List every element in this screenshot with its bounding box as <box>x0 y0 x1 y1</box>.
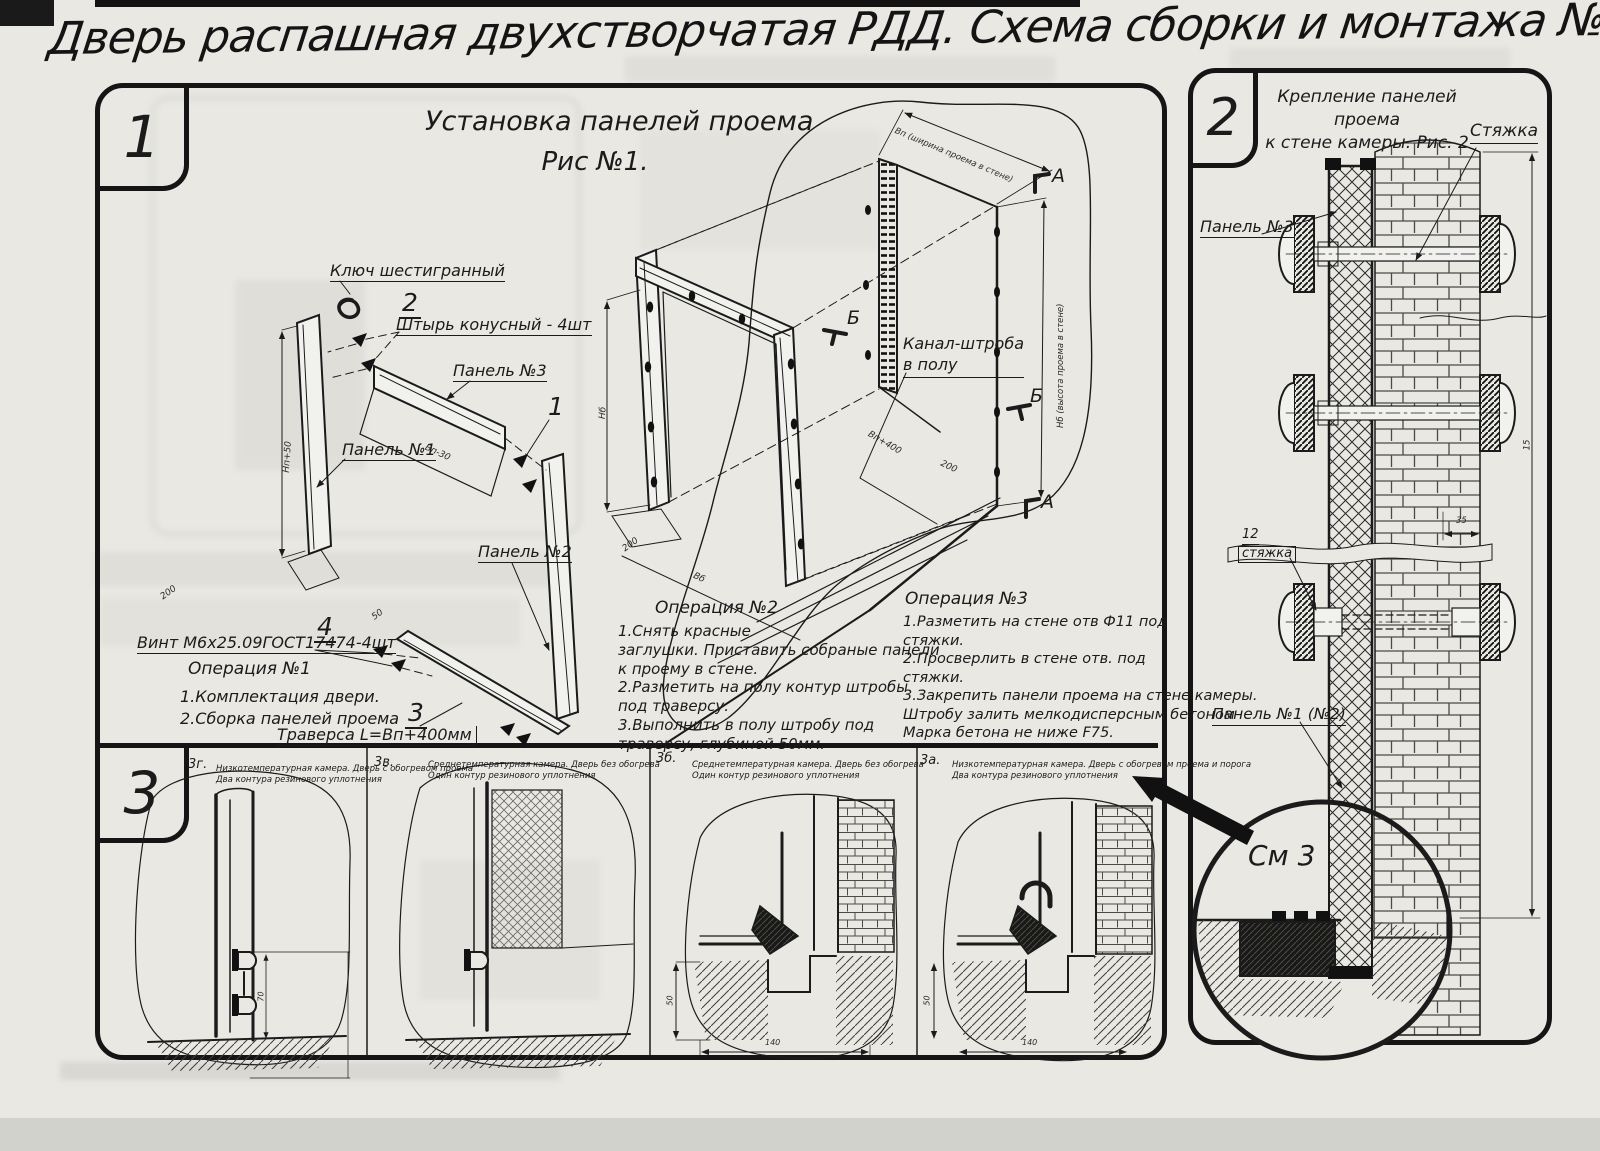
label-tie: Стяжка <box>1470 122 1538 144</box>
label-see-detail: См 3 <box>1248 840 1315 872</box>
sub-3b-desc: Среднетемпературная камера. Дверь без об… <box>692 760 924 782</box>
sub-3g-code: 3г. <box>188 758 207 773</box>
marker-b-left: Б <box>847 308 860 330</box>
label-screw: Винт М6х25.09ГОСТ17474-4шт <box>137 634 396 654</box>
fig1-subtitle: Рис №1. <box>425 148 765 178</box>
section-2-number: 2 <box>1206 88 1239 148</box>
op2-text: 1.Снять красные заглушки. Приставить соб… <box>618 622 940 753</box>
callout-1: 1 <box>545 392 567 421</box>
dim-3a-h: 140 <box>1022 1038 1037 1047</box>
op3-text: 1.Разметить на стене отв Ф11 под стяжки.… <box>903 613 1257 743</box>
ghost-artifact <box>60 1062 560 1080</box>
dim-15: 15 <box>1522 440 1532 451</box>
label-panel2: Панель №2 <box>478 543 572 563</box>
marker-a-top: А <box>1052 166 1065 188</box>
label-hex-key: Ключ шестигранный <box>330 262 505 282</box>
drawing-sheet: Дверь распашная двухстворчатая РДД. Схем… <box>0 0 1600 1151</box>
label-pos12-name: стяжка <box>1238 546 1296 563</box>
dim: Нб <box>598 407 609 420</box>
fig2-title: Крепление панелей проема к стене камеры.… <box>1262 86 1472 155</box>
label-traverse: Траверса L=Вп+400мм <box>277 726 477 746</box>
label-pos12: 12 <box>1242 528 1259 545</box>
op1-title: Операция №1 <box>188 660 311 680</box>
scan-edge-bottom <box>0 1118 1600 1151</box>
sub-3v-desc: Среднетемпературная камера. Дверь без об… <box>428 760 660 782</box>
sub-3v-code: 3в. <box>374 756 394 771</box>
label-panel1: Панель №1 <box>342 441 436 461</box>
section-2-tab: 2 <box>1193 73 1258 168</box>
label-s2-panel3: Панель №3 <box>1200 218 1294 238</box>
dim-3b-h: 140 <box>765 1038 780 1047</box>
sub-3a-desc: Низкотемпературная камера. Дверь с обогр… <box>952 760 1251 782</box>
dim-3a-v: 50 <box>923 995 932 1005</box>
frame-section-1-3 <box>95 83 1167 1060</box>
dim-opening-height: Нб (высота проема в стене) <box>1056 304 1066 428</box>
label-channel: Канал-штроба в полу <box>903 334 1024 378</box>
section-1-number: 1 <box>124 103 161 171</box>
sub-3b-code: 3б. <box>656 752 676 767</box>
label-panel12: Панель №1 (№2) <box>1212 706 1346 726</box>
dim-35: 35 <box>1456 516 1467 526</box>
ghost-artifact <box>1230 48 1510 70</box>
section-3-tab: 3 <box>100 748 189 843</box>
op2-title: Операция №2 <box>655 599 778 619</box>
scan-blob-topleft <box>0 0 54 26</box>
ghost-artifact <box>625 56 1055 82</box>
label-pin: Штырь конусный - 4шт <box>396 316 592 336</box>
sub-3a-code: 3а. <box>920 754 940 769</box>
dim-3g: 70 <box>257 991 266 1001</box>
op1-text: 1.Комплектация двери. 2.Сборка панелей п… <box>180 686 399 729</box>
section-1-tab: 1 <box>100 88 189 191</box>
label-panel3: Панель №3 <box>453 362 547 382</box>
marker-a-bottom: А <box>1041 492 1054 514</box>
marker-b-right: Б <box>1030 386 1043 408</box>
op3-title: Операция №3 <box>905 590 1028 610</box>
dim-3b-v: 50 <box>666 995 675 1005</box>
section-3-number: 3 <box>124 759 161 827</box>
fig1-title: Установка панелей проема <box>425 106 765 137</box>
